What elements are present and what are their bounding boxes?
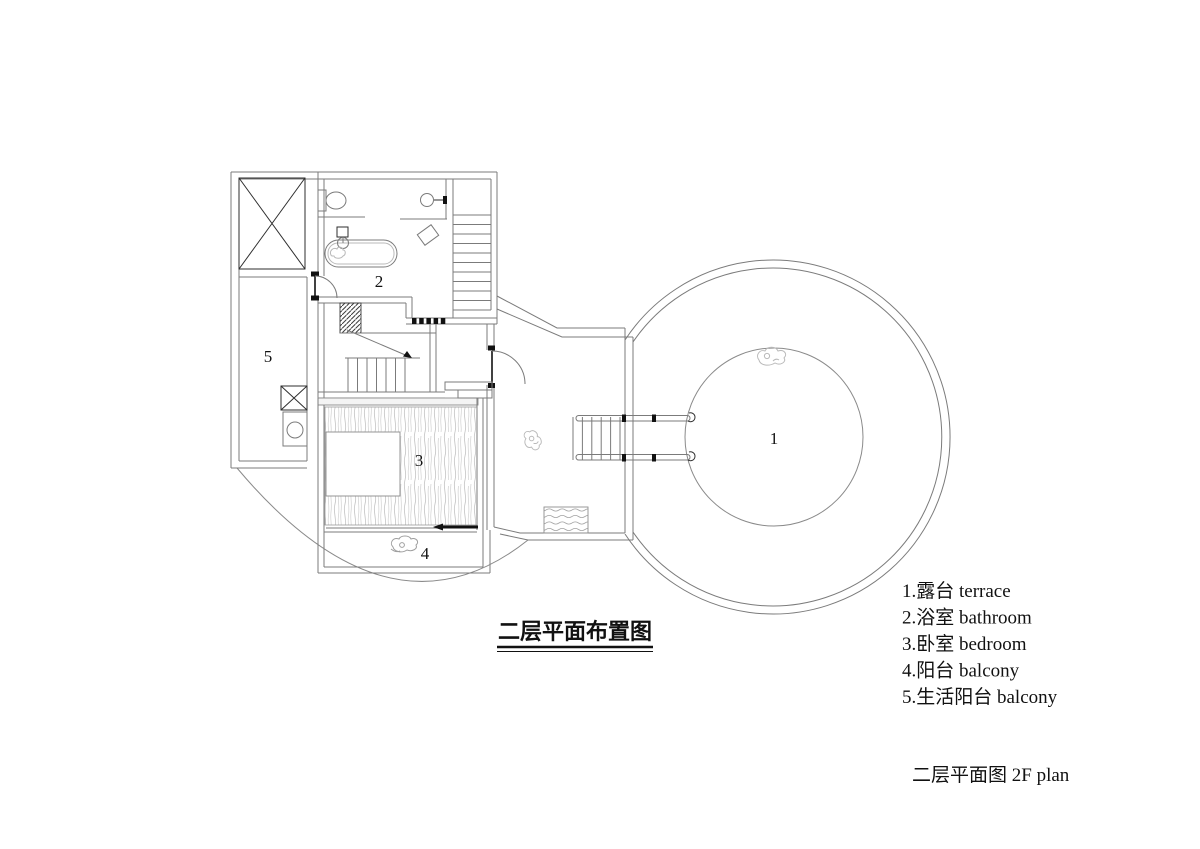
window-sill [412,318,445,324]
floor-plan-page: 1 2 3 4 5 二层平面布置图 1.露台 terrace 2.浴室 bath… [0,0,1200,849]
floor-plan-canvas: 1 2 3 4 5 二层平面布置图 1.露台 terrace 2.浴室 bath… [0,0,1200,849]
plant-icon-balcony [391,536,418,552]
living-balcony-walls [239,277,307,461]
bedroom [318,382,492,573]
washing-machine-icon [281,386,307,446]
bedroom-rug [326,432,400,496]
plan-title: 二层平面布置图 [498,619,652,644]
mirror-icon [417,225,438,246]
terrace-mat [544,507,588,533]
sink-icon [421,194,448,207]
bridge-stairs [573,413,695,462]
legend-item-living-balcony: 5.生活阳台 balcony [902,686,1058,708]
plant-icon-terrace [758,347,786,365]
bathtub-icon [325,227,397,267]
room-label-living-balcony: 5 [264,347,273,366]
room-label-balcony: 4 [421,544,430,563]
room-label-bathroom: 2 [375,272,384,291]
terrace-door [488,346,525,389]
stair-hall [318,298,445,398]
terrace-circle [625,260,950,614]
legend-item-balcony: 4.阳台 balcony [902,660,1020,682]
legend-item-bathroom: 2.浴室 bathroom [902,607,1032,629]
toilet-icon [318,190,346,211]
plan-title-block: 二层平面布置图 [497,619,653,652]
legend: 1.露台 terrace 2.浴室 bathroom 3.卧室 bedroom … [902,580,1058,708]
corridor-right-wall [487,324,494,530]
legend-item-terrace: 1.露台 terrace [902,580,1011,602]
legend-item-bedroom: 3.卧室 bedroom [902,633,1027,655]
room-label-bedroom: 3 [415,451,424,470]
room-label-terrace: 1 [770,429,779,448]
terrace-neck-walls [494,296,633,540]
main-stairs [406,179,497,324]
plant-icon-walkway [524,431,541,450]
shaft-void [239,178,305,269]
plan-caption: 二层平面图 2F plan [912,765,1070,786]
